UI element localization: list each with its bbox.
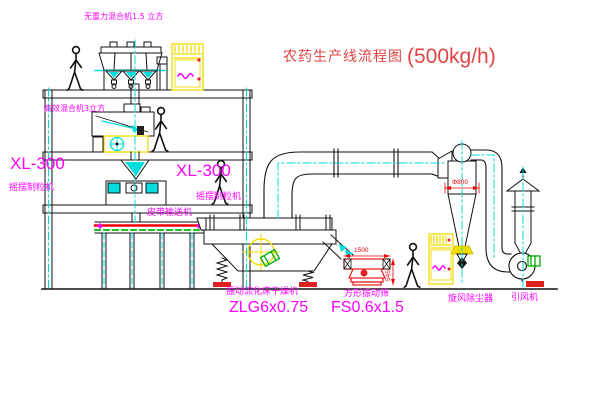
label-fan-name: 引风机 <box>511 294 538 303</box>
dim-screen-height: 545 <box>386 270 393 281</box>
screen-motor <box>361 270 368 277</box>
label-granulator-left-name: 摇摆制粒机 <box>9 184 54 193</box>
cabinet-text-squiggle <box>433 266 445 270</box>
title-capacity: (500kg/h) <box>407 46 496 67</box>
belt-conveyor <box>95 222 204 288</box>
label-granulator-right-name: 摇摆制粒机 <box>196 193 241 202</box>
fan-duct <box>471 150 511 272</box>
control-cabinet-top <box>172 44 203 90</box>
process-flow-drawing: 农药生产线流程图 (500kg/h) 无重力混合机1.5 立方 高效混合机3立方… <box>0 0 600 403</box>
conveyor-legs <box>102 233 194 288</box>
drawing-title: 农药生产线流程图 (500kg/h) <box>283 46 496 67</box>
label-cyclone-name: 旋风除尘器 <box>448 295 493 304</box>
title-text: 农药生产线流程图 <box>283 50 403 64</box>
label-roof-mixer: 无重力混合机1.5 立方 <box>84 13 163 21</box>
label-belt-conveyor: 皮带输送机 <box>147 209 192 218</box>
label-screen-name: 方形振动筛 <box>344 290 389 299</box>
exhaust-duct <box>264 149 440 218</box>
fan-motor <box>528 256 540 266</box>
dim-cyclone-diameter: Φ800 <box>452 180 468 187</box>
dim-screen-length: 1500 <box>354 248 368 255</box>
fluid-bed-dryer <box>197 215 353 287</box>
label-dryer-model: ZLG6x0.75 <box>229 300 308 316</box>
control-cabinet-right <box>429 234 453 284</box>
person-figure <box>404 244 420 288</box>
cabinet-text-squiggle <box>178 74 193 79</box>
label-screen-model: FS0.6x1.5 <box>331 300 404 316</box>
person-figure <box>152 108 168 152</box>
label-dryer-name: 振动流化床干燥机 <box>226 288 298 297</box>
person-figure <box>67 47 83 91</box>
label-granulator-left-model: XL-300 <box>10 155 65 172</box>
induced-draft-fan <box>509 253 544 287</box>
roof-mixer <box>95 42 167 104</box>
label-floor-mixer: 高效混合机3立方 <box>44 105 105 113</box>
label-granulator-right-model: XL-300 <box>176 162 231 179</box>
